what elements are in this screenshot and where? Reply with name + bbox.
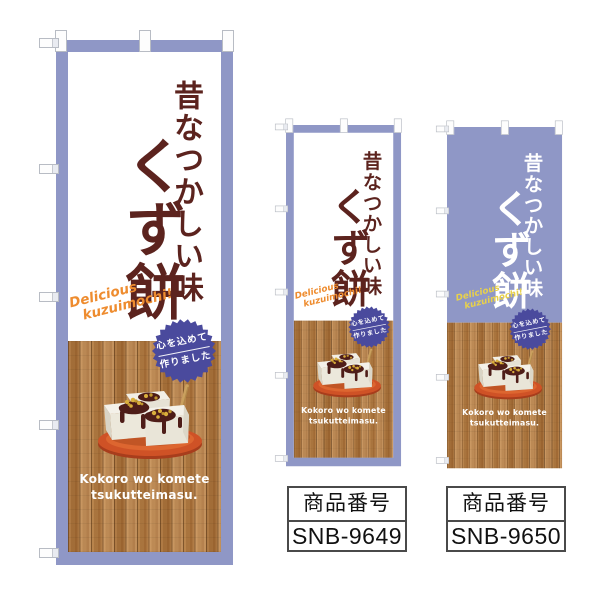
badge-text: 心を込めて 作りました: [345, 303, 394, 352]
nobori-banner-design: 昔なつかしい味 くず餅 Delicious kuzuimochi! 心を込めて …: [286, 125, 401, 466]
pole-sleeve-tab-top-center: [501, 121, 509, 135]
product-code: SNB-9649: [289, 522, 405, 550]
pole-sleeve-tab-side: [275, 372, 288, 379]
badge-text: 心を込めて 作りました: [506, 305, 555, 354]
pole-sleeve-tab-side: [436, 208, 449, 215]
nobori-banner-design: 昔なつかしい味 くず餅 Delicious kuzuimochi! 心を込めて …: [56, 40, 233, 565]
romaji-line-2: tsukutteimasu.: [447, 418, 562, 428]
handmade-badge: 心を込めて 作りました: [152, 319, 216, 383]
pole-sleeve-tab-side: [275, 455, 288, 462]
pole-sleeve-tab-side: [39, 548, 59, 558]
nobori-banner-large-preview: 昔なつかしい味 くず餅 Delicious kuzuimochi! 心を込めて …: [56, 40, 233, 565]
romaji-line-2: tsukutteimasu.: [294, 416, 393, 426]
product-code: SNB-9650: [448, 522, 564, 550]
banner-romaji-text: Kokoro wo komete tsukutteimasu.: [447, 407, 562, 428]
pole-sleeve-tab-top-right: [394, 119, 402, 133]
kuzumochi-plate-illustration: [472, 348, 545, 401]
banner-romaji-text: Kokoro wo komete tsukutteimasu.: [68, 471, 221, 503]
handmade-badge: 心を込めて 作りました: [348, 306, 390, 348]
pole-sleeve-tab-side: [436, 126, 449, 133]
badge-text: 心を込めて 作りました: [146, 313, 221, 388]
pole-sleeve-tab-top-right: [555, 121, 563, 135]
handmade-badge: 心を込めて 作りました: [509, 308, 551, 350]
product-label-snb-9650: 商品番号 SNB-9650: [446, 486, 566, 552]
pole-sleeve-tab-side: [436, 374, 449, 381]
pole-sleeve-tab-side: [39, 420, 59, 430]
pole-sleeve-tab-side: [275, 206, 288, 213]
romaji-line-1: Kokoro wo komete: [447, 407, 562, 417]
nobori-banner-snb-9649: 昔なつかしい味 くず餅 Delicious kuzuimochi! 心を込めて …: [286, 125, 401, 467]
kuzumochi-plate-illustration: [94, 380, 206, 462]
romaji-line-1: Kokoro wo komete: [294, 405, 393, 415]
kuzumochi-plate-illustration: [311, 346, 384, 399]
nobori-banner-design: 昔なつかしい味 くず餅 Delicious kuzuimochi! 心を込めて …: [447, 127, 562, 468]
pole-sleeve-tab-side: [436, 291, 449, 298]
romaji-line-2: tsukutteimasu.: [68, 487, 221, 503]
pole-sleeve-tab-side: [436, 457, 449, 464]
nobori-banner-snb-9650: 昔なつかしい味 くず餅 Delicious kuzuimochi! 心を込めて …: [447, 127, 562, 468]
pole-sleeve-tab-side: [275, 289, 288, 296]
product-number-caption: 商品番号: [289, 488, 405, 522]
banner-romaji-text: Kokoro wo komete tsukutteimasu.: [294, 405, 393, 426]
product-label-snb-9649: 商品番号 SNB-9649: [287, 486, 407, 552]
romaji-line-1: Kokoro wo komete: [68, 471, 221, 487]
pole-sleeve-tab-top-center: [340, 119, 348, 133]
pole-sleeve-tab-side: [275, 124, 288, 131]
product-number-caption: 商品番号: [448, 488, 564, 522]
product-gallery: 昔なつかしい味 くず餅 Delicious kuzuimochi! 心を込めて …: [0, 0, 600, 600]
pole-sleeve-tab-side: [39, 292, 59, 302]
pole-sleeve-tab-top-center: [139, 30, 151, 52]
pole-sleeve-tab-side: [39, 38, 59, 48]
pole-sleeve-tab-top-right: [222, 30, 234, 52]
pole-sleeve-tab-side: [39, 164, 59, 174]
